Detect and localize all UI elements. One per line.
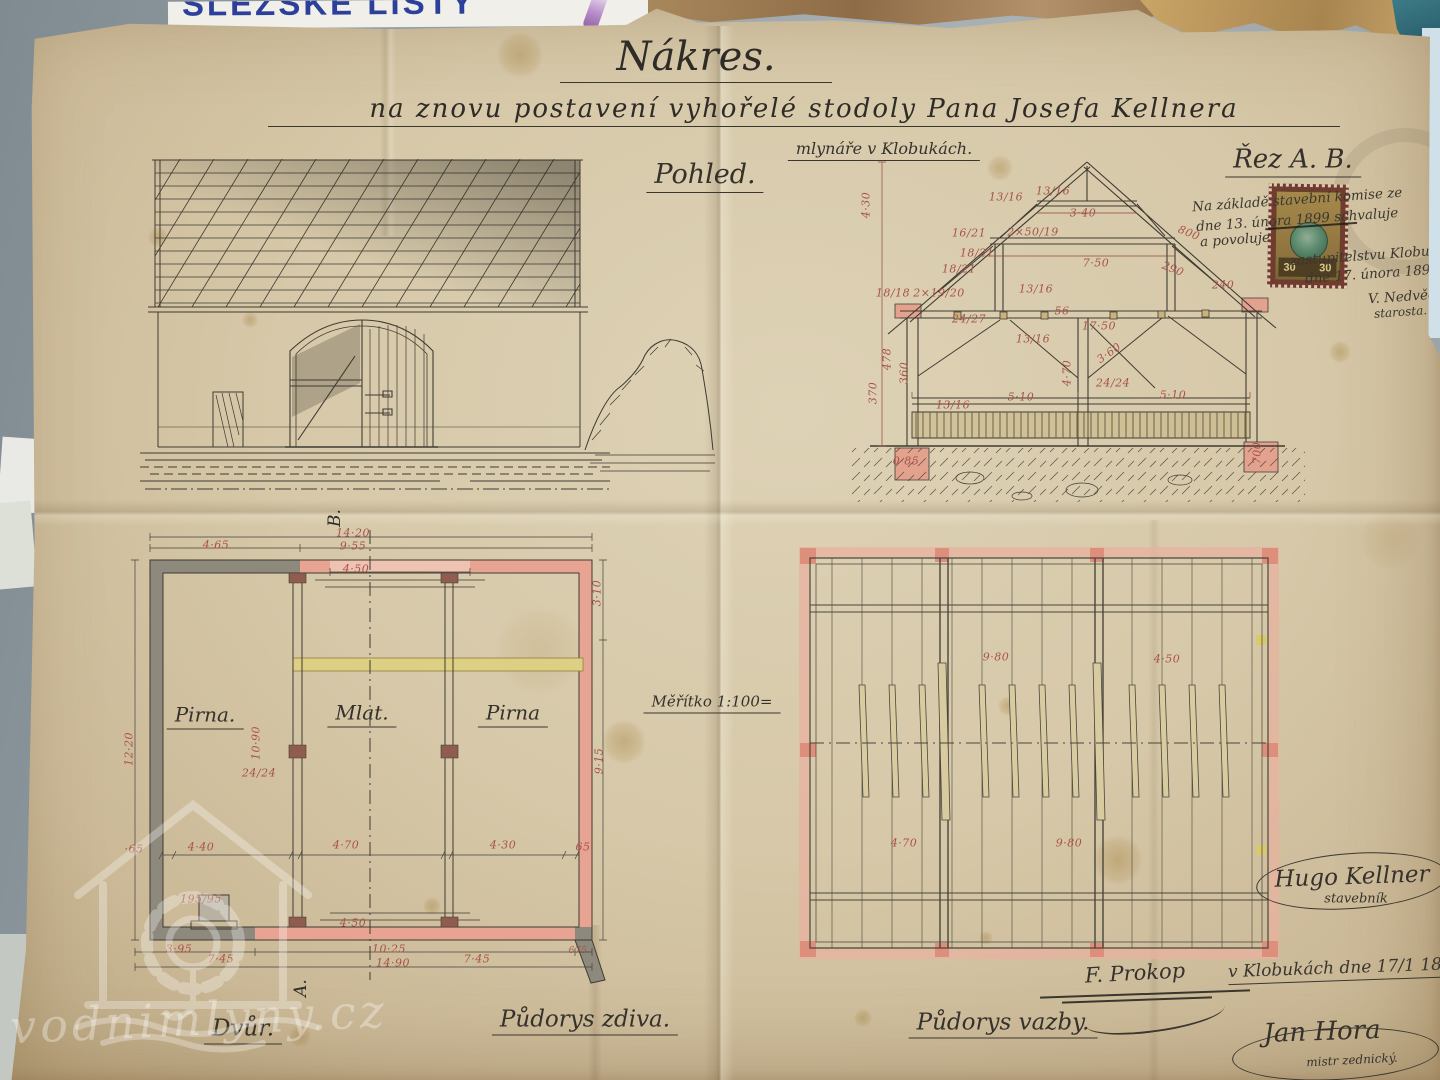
paper-stain	[497, 32, 543, 78]
dim-label: 9·80	[983, 651, 1010, 664]
dim-label: 18/21	[960, 247, 994, 260]
dim-label: 24/27	[952, 313, 986, 326]
signature-witness: F. Prokop	[1084, 958, 1185, 987]
white-paper-scrap	[0, 501, 38, 590]
signature-master-mason: Jan Hora	[1263, 1015, 1381, 1049]
section-title: Řez A. B.	[1225, 145, 1361, 178]
dim-label: 9·55	[340, 540, 367, 553]
dim-label: 2×19/20	[913, 287, 964, 300]
dim-label: 16/21	[952, 227, 986, 240]
dim-label: 12·20	[123, 732, 136, 766]
dim-label: 4·70	[891, 837, 918, 850]
hillock-sketch	[585, 339, 715, 471]
dim-label: 4·50	[340, 917, 367, 930]
dim-label: 360	[898, 362, 911, 385]
signature-builder-title: stavebník	[1324, 892, 1387, 907]
dim-label: 4·30	[860, 192, 873, 219]
sheet-title: Nákres.	[560, 34, 832, 83]
barn-wall	[148, 307, 588, 447]
sheet-subtitle: na znovu postavení vyhořelé stodoly Pana…	[268, 94, 1340, 127]
dim-label: 13/16	[989, 191, 1023, 204]
pink-corner-blocks	[800, 548, 1278, 957]
framing-plan-drawing	[790, 535, 1290, 960]
section-marker-b: B.	[325, 509, 345, 527]
purlin-bars	[859, 663, 1229, 820]
small-door	[213, 392, 243, 447]
newspaper-fragment: SLEZSKÉ LISTY	[168, 0, 654, 29]
barn-gate	[285, 320, 438, 447]
scale-label: Měřítko 1:100=	[644, 693, 781, 714]
photo-of-old-barn-blueprint: SLEZSKÉ LISTY Nákres. na znovu postavení	[0, 0, 1440, 1080]
framing-plan-title: Půdorys vazby.	[909, 1010, 1098, 1039]
dim-label: 14·90	[376, 957, 410, 970]
dim-label: 65	[576, 841, 591, 854]
paper-stain	[854, 1009, 872, 1027]
dim-label: 700	[1251, 442, 1264, 465]
ground-lines	[140, 453, 610, 489]
approval-signature-title: starosta.	[1374, 303, 1428, 321]
dim-label: 10·90	[250, 726, 263, 760]
pen	[582, 0, 610, 29]
newspaper-headline: SLEZSKÉ LISTY	[182, 0, 476, 24]
dim-label: 370	[867, 382, 880, 405]
dim-label: 240	[1212, 279, 1235, 292]
dim-label: 5·10	[1008, 391, 1035, 404]
dim-label: 7·45	[464, 953, 491, 966]
dim-label: 13/16	[1036, 185, 1070, 198]
dim-label: 18/21	[942, 263, 976, 276]
dim-label: 13/16	[936, 399, 970, 412]
dim-label: 675	[569, 946, 588, 956]
dim-label: 4·30	[490, 839, 517, 852]
dim-label: 4·65	[203, 539, 230, 552]
dim-label: 478	[881, 348, 894, 371]
dim-label: 5·10	[1160, 389, 1187, 402]
sheet-subtitle-2: mlynáře v Klobukách.	[788, 139, 980, 161]
signature-builder: Hugo Kellner	[1274, 861, 1430, 892]
dim-label: 10·25	[372, 943, 406, 956]
dim-label: 13/16	[1019, 283, 1053, 296]
roof	[90, 159, 656, 307]
dim-label: 0·85	[893, 455, 920, 468]
dim-label: 2×50/19	[1007, 226, 1058, 239]
room-label: Pirna	[478, 701, 548, 728]
dim-label: 4·50	[1154, 653, 1181, 666]
dim-label: 18/18	[876, 287, 910, 300]
dim-label: 24/24	[1096, 377, 1130, 390]
yellow-beam	[293, 658, 583, 671]
elevation-drawing	[140, 155, 715, 500]
frame-beams	[810, 558, 1268, 948]
paper-stain	[1329, 341, 1351, 363]
dim-label: 14·20	[336, 527, 370, 540]
dim-label: 3·40	[1070, 207, 1097, 220]
dim-label: 9·15	[593, 748, 606, 775]
dim-label: 3·10	[591, 580, 604, 607]
room-label: Pirna.	[167, 703, 244, 730]
dim-label: 7·50	[1083, 257, 1110, 270]
wattle-panel	[912, 412, 1250, 438]
dim-label: 13/16	[1016, 333, 1050, 346]
dim-label: 4·50	[343, 563, 370, 576]
dim-label: 17·50	[1082, 320, 1116, 333]
room-label: Mlat.	[327, 701, 396, 728]
dim-label: 4·70	[1061, 360, 1074, 387]
dim-label: 56	[1055, 305, 1070, 318]
floorplan-title: Půdorys zdiva.	[492, 1007, 678, 1036]
dim-label: 9·80	[1056, 837, 1083, 850]
paper-stain	[1360, 510, 1420, 570]
signature-flourish	[1040, 989, 1250, 998]
elevation-title: Pohled.	[646, 159, 763, 193]
